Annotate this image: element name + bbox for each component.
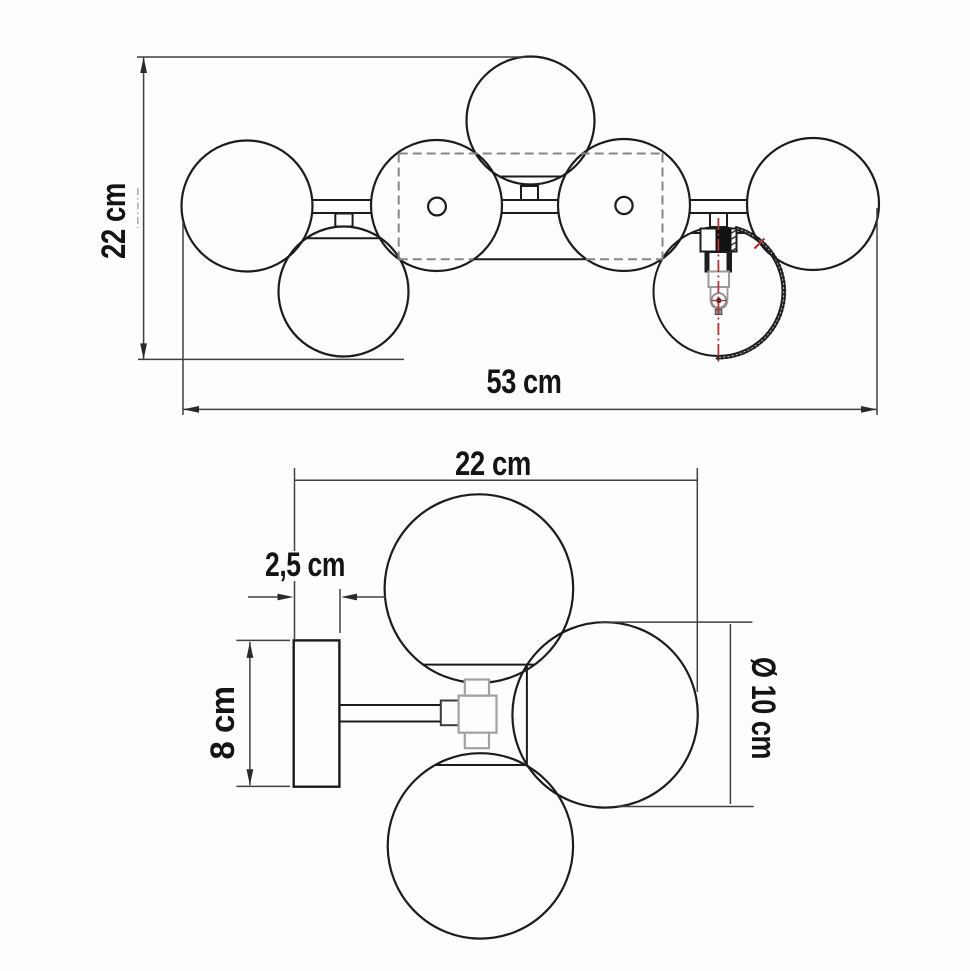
svg-text:53 cm: 53 cm	[487, 363, 562, 401]
svg-text:8 cm: 8 cm	[204, 687, 242, 760]
svg-text:2,5 cm: 2,5 cm	[265, 546, 345, 584]
svg-text:22 cm: 22 cm	[95, 183, 133, 259]
svg-text:22 cm: 22 cm	[455, 445, 531, 483]
svg-text:Ø 10 cm: Ø 10 cm	[744, 657, 782, 759]
